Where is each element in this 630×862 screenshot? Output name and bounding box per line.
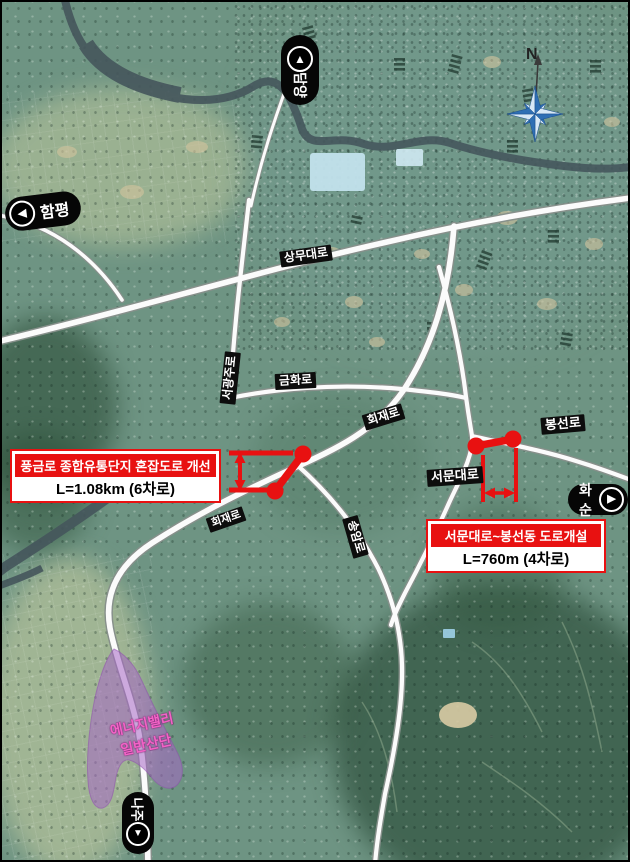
- blue-roof: [443, 629, 455, 638]
- project-detail: L=760m (4차로): [431, 547, 601, 569]
- project-detail: L=1.08km (6차로): [15, 477, 216, 499]
- blue-facility-small: [396, 149, 423, 166]
- project-box-seomun-bongseon: 서문대로~봉선동 도로개설 L=760m (4차로): [426, 519, 606, 573]
- direction-label-hwasun: 화순: [579, 480, 594, 520]
- project-punggeum-marking: [229, 446, 312, 500]
- compass-north-label: N: [526, 46, 538, 64]
- direction-label-hampyeong: 함평: [39, 196, 71, 223]
- satellite-map: N 상무대로 서광주로 금화로 회재로 회재로 서문대로 봉선로 송암로 ▲ 담…: [0, 0, 630, 862]
- arrow-left-icon: ◀: [8, 199, 37, 228]
- direction-label-damyang: 담양: [290, 72, 310, 98]
- road-label-geumhwa: 금화로: [275, 372, 317, 390]
- direction-pill-naju: 나주 ▼: [122, 792, 154, 854]
- project-title: 풍금로 종합유통단지 혼잡도로 개선: [15, 454, 216, 477]
- direction-label-naju: 나주: [128, 798, 147, 822]
- quarry-patch: [439, 702, 477, 728]
- arrow-down-icon: ▼: [126, 822, 150, 846]
- direction-pill-damyang: ▲ 담양: [281, 35, 319, 105]
- arrow-up-icon: ▲: [287, 46, 313, 72]
- direction-pill-hwasun: 화순 ▶: [568, 484, 628, 515]
- arrow-right-icon: ▶: [599, 487, 624, 512]
- project-box-punggeum: 풍금로 종합유통단지 혼잡도로 개선 L=1.08km (6차로): [10, 449, 221, 503]
- compass-rose-icon: [507, 54, 563, 142]
- blue-facility-large: [310, 153, 365, 191]
- project-title: 서문대로~봉선동 도로개설: [431, 524, 601, 547]
